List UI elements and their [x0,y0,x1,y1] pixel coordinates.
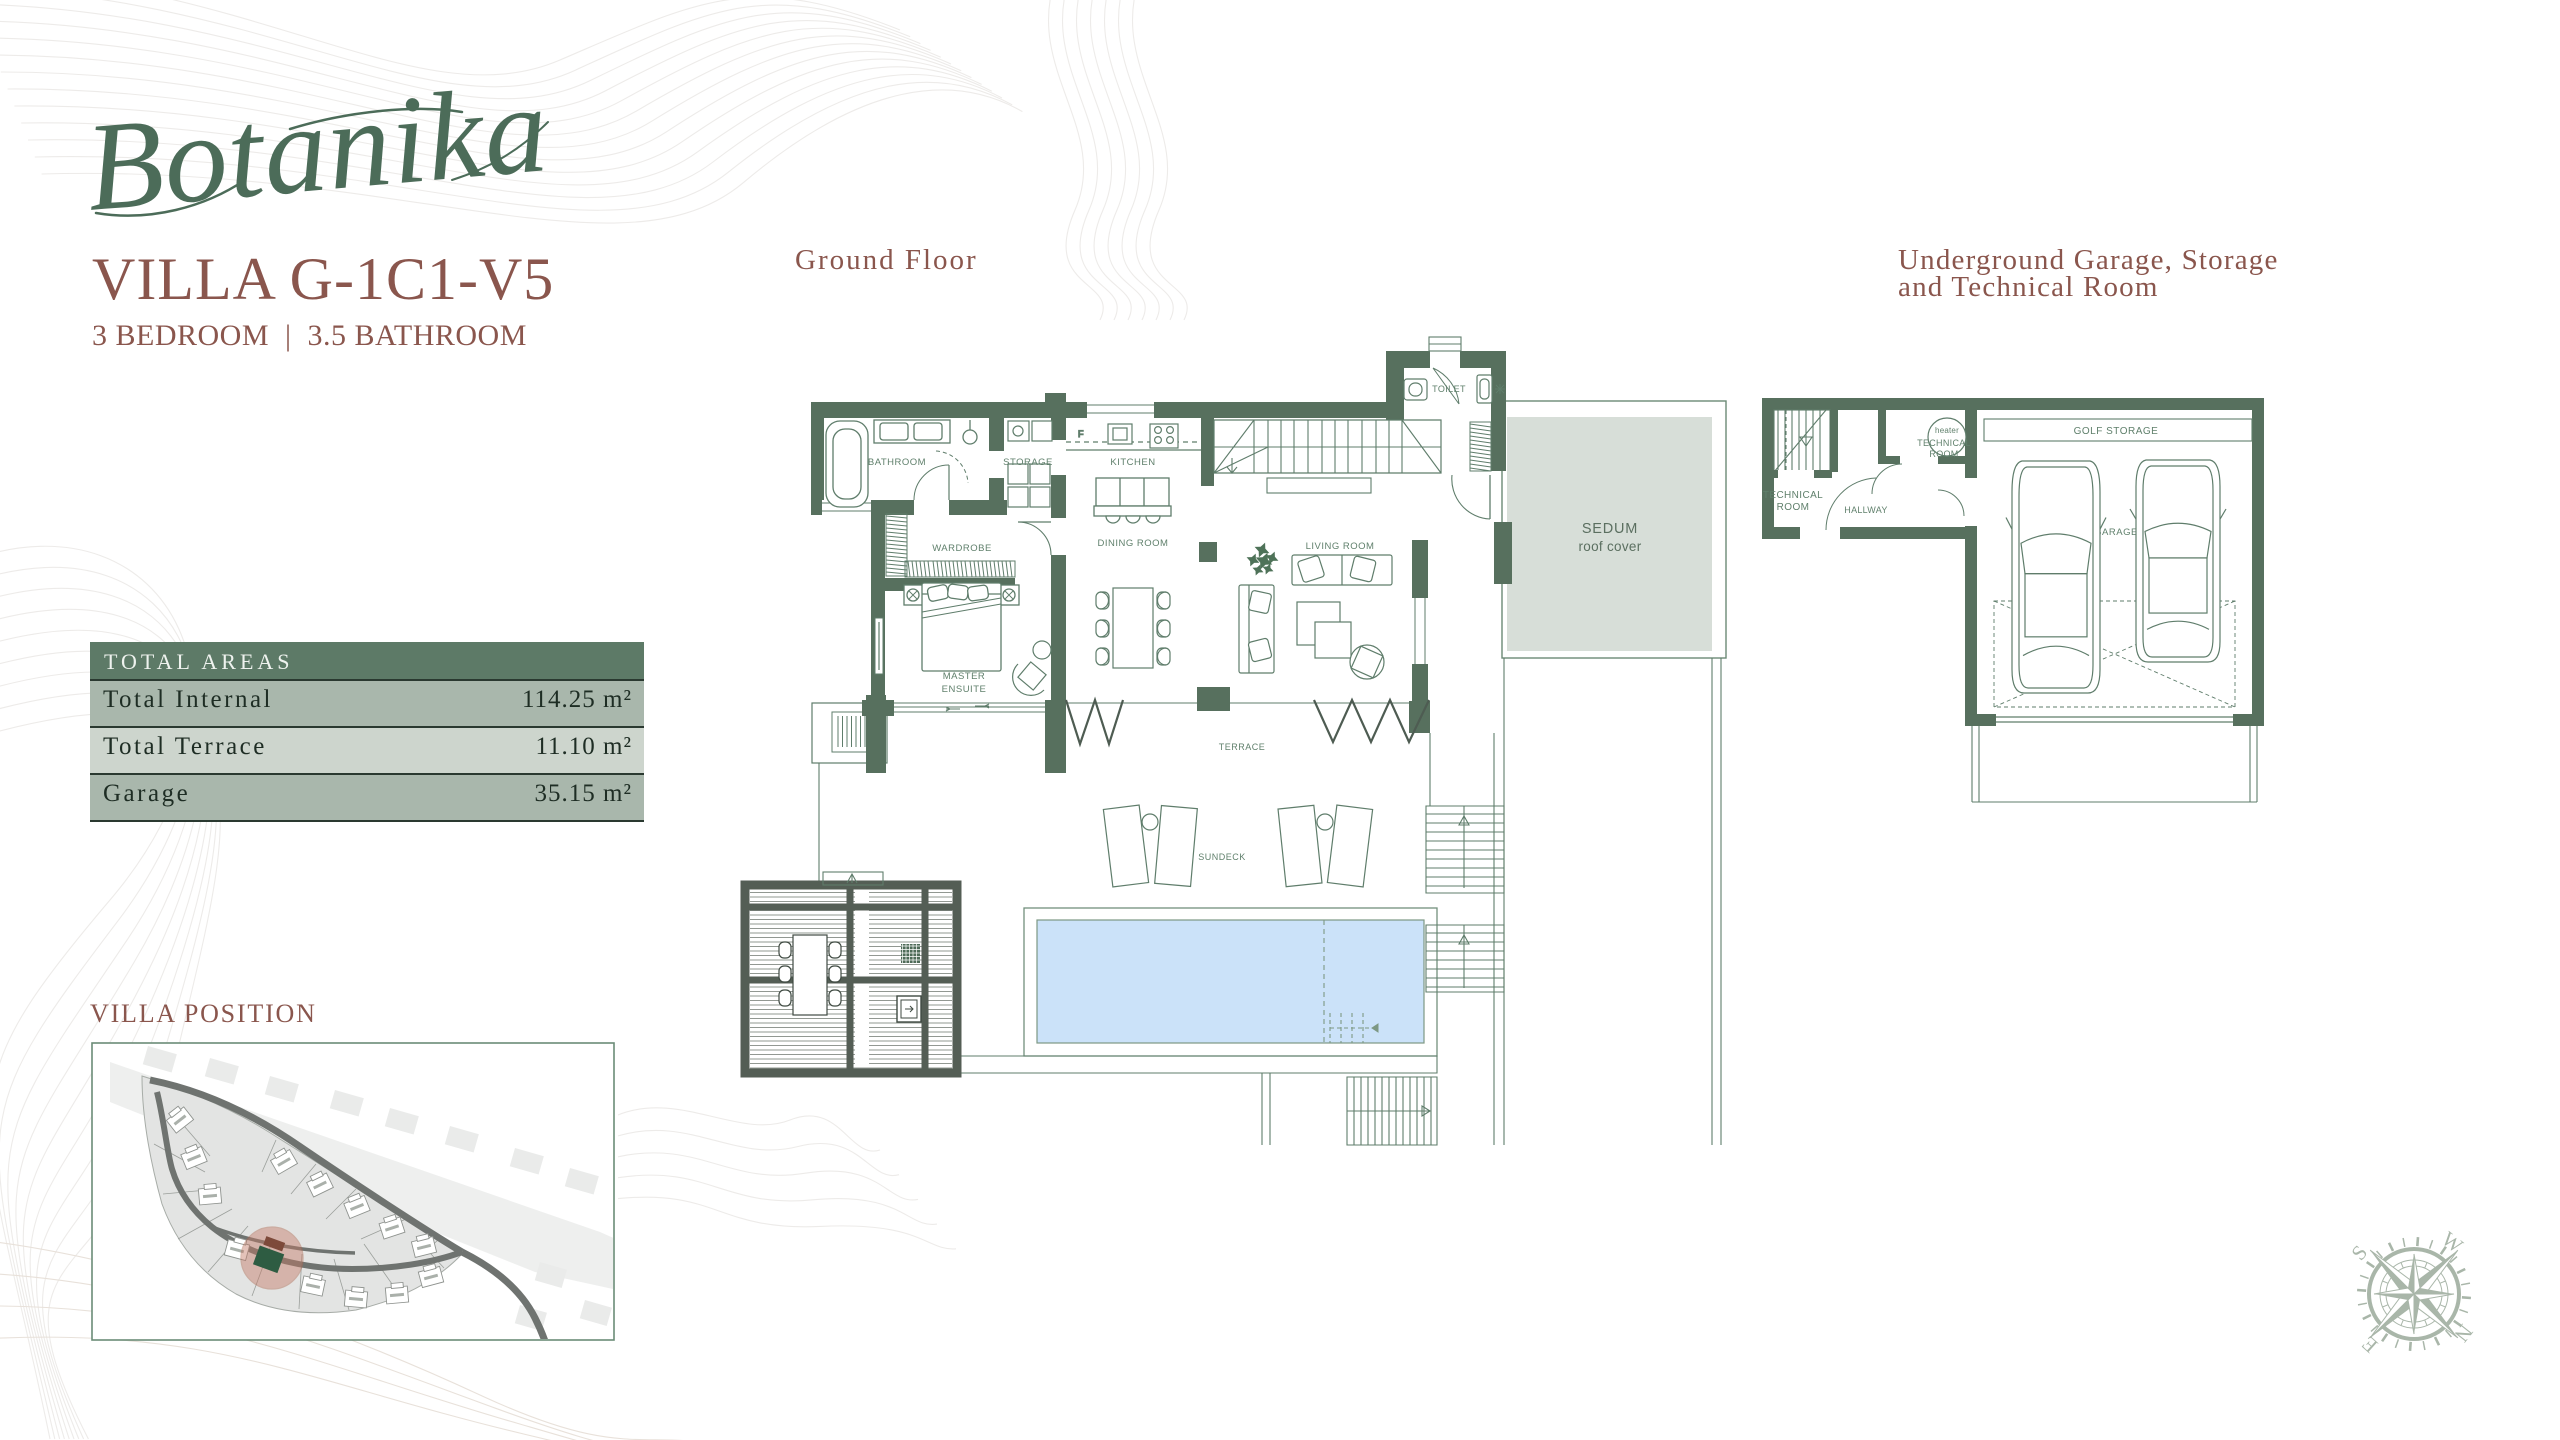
svg-text:LIVING ROOM: LIVING ROOM [1306,541,1375,552]
svg-text:TECHNICAL: TECHNICAL [1763,490,1823,501]
svg-text:11.10 m²: 11.10 m² [535,733,632,760]
svg-text:VILLA POSITION: VILLA POSITION [90,999,317,1028]
svg-text:STORAGE: STORAGE [1003,457,1053,468]
svg-text:Total Internal: Total Internal [103,686,273,713]
svg-text:VILLA G-1C1-V5: VILLA G-1C1-V5 [92,246,554,312]
svg-text:GOLF STORAGE: GOLF STORAGE [2074,426,2159,437]
svg-text:ENSUITE: ENSUITE [942,684,987,695]
svg-text:ROOM: ROOM [1777,502,1810,513]
svg-text:Garage: Garage [103,780,190,807]
svg-text:F: F [1078,429,1084,439]
svg-text:35.15 m²: 35.15 m² [535,780,632,807]
svg-text:TECHNICAL: TECHNICAL [1917,438,1971,448]
svg-text:KITCHEN: KITCHEN [1110,457,1155,468]
svg-text:SUNDECK: SUNDECK [1198,852,1246,862]
svg-text:114.25 m²: 114.25 m² [522,686,632,713]
svg-text:TOTAL AREAS: TOTAL AREAS [104,649,294,674]
svg-text:and Technical Room: and Technical Room [1898,271,2159,303]
svg-text:BATHROOM: BATHROOM [868,457,926,468]
svg-text:ROOM: ROOM [1929,449,1958,459]
svg-text:Total Terrace: Total Terrace [103,733,267,760]
svg-text:heater: heater [1935,426,1959,435]
svg-text:HALLWAY: HALLWAY [1844,505,1887,515]
svg-text:DINING ROOM: DINING ROOM [1098,538,1169,549]
svg-text:3 BEDROOM | 3.5 BATHROOM: 3 BEDROOM | 3.5 BATHROOM [92,319,527,352]
svg-text:TOILET: TOILET [1432,384,1466,394]
svg-text:WARDROBE: WARDROBE [932,543,992,554]
svg-text:MASTER: MASTER [943,671,986,682]
svg-text:TERRACE: TERRACE [1219,742,1266,752]
svg-text:SEDUM: SEDUM [1582,521,1638,537]
svg-text:Ground Floor: Ground Floor [795,244,978,276]
svg-text:roof cover: roof cover [1578,539,1641,554]
